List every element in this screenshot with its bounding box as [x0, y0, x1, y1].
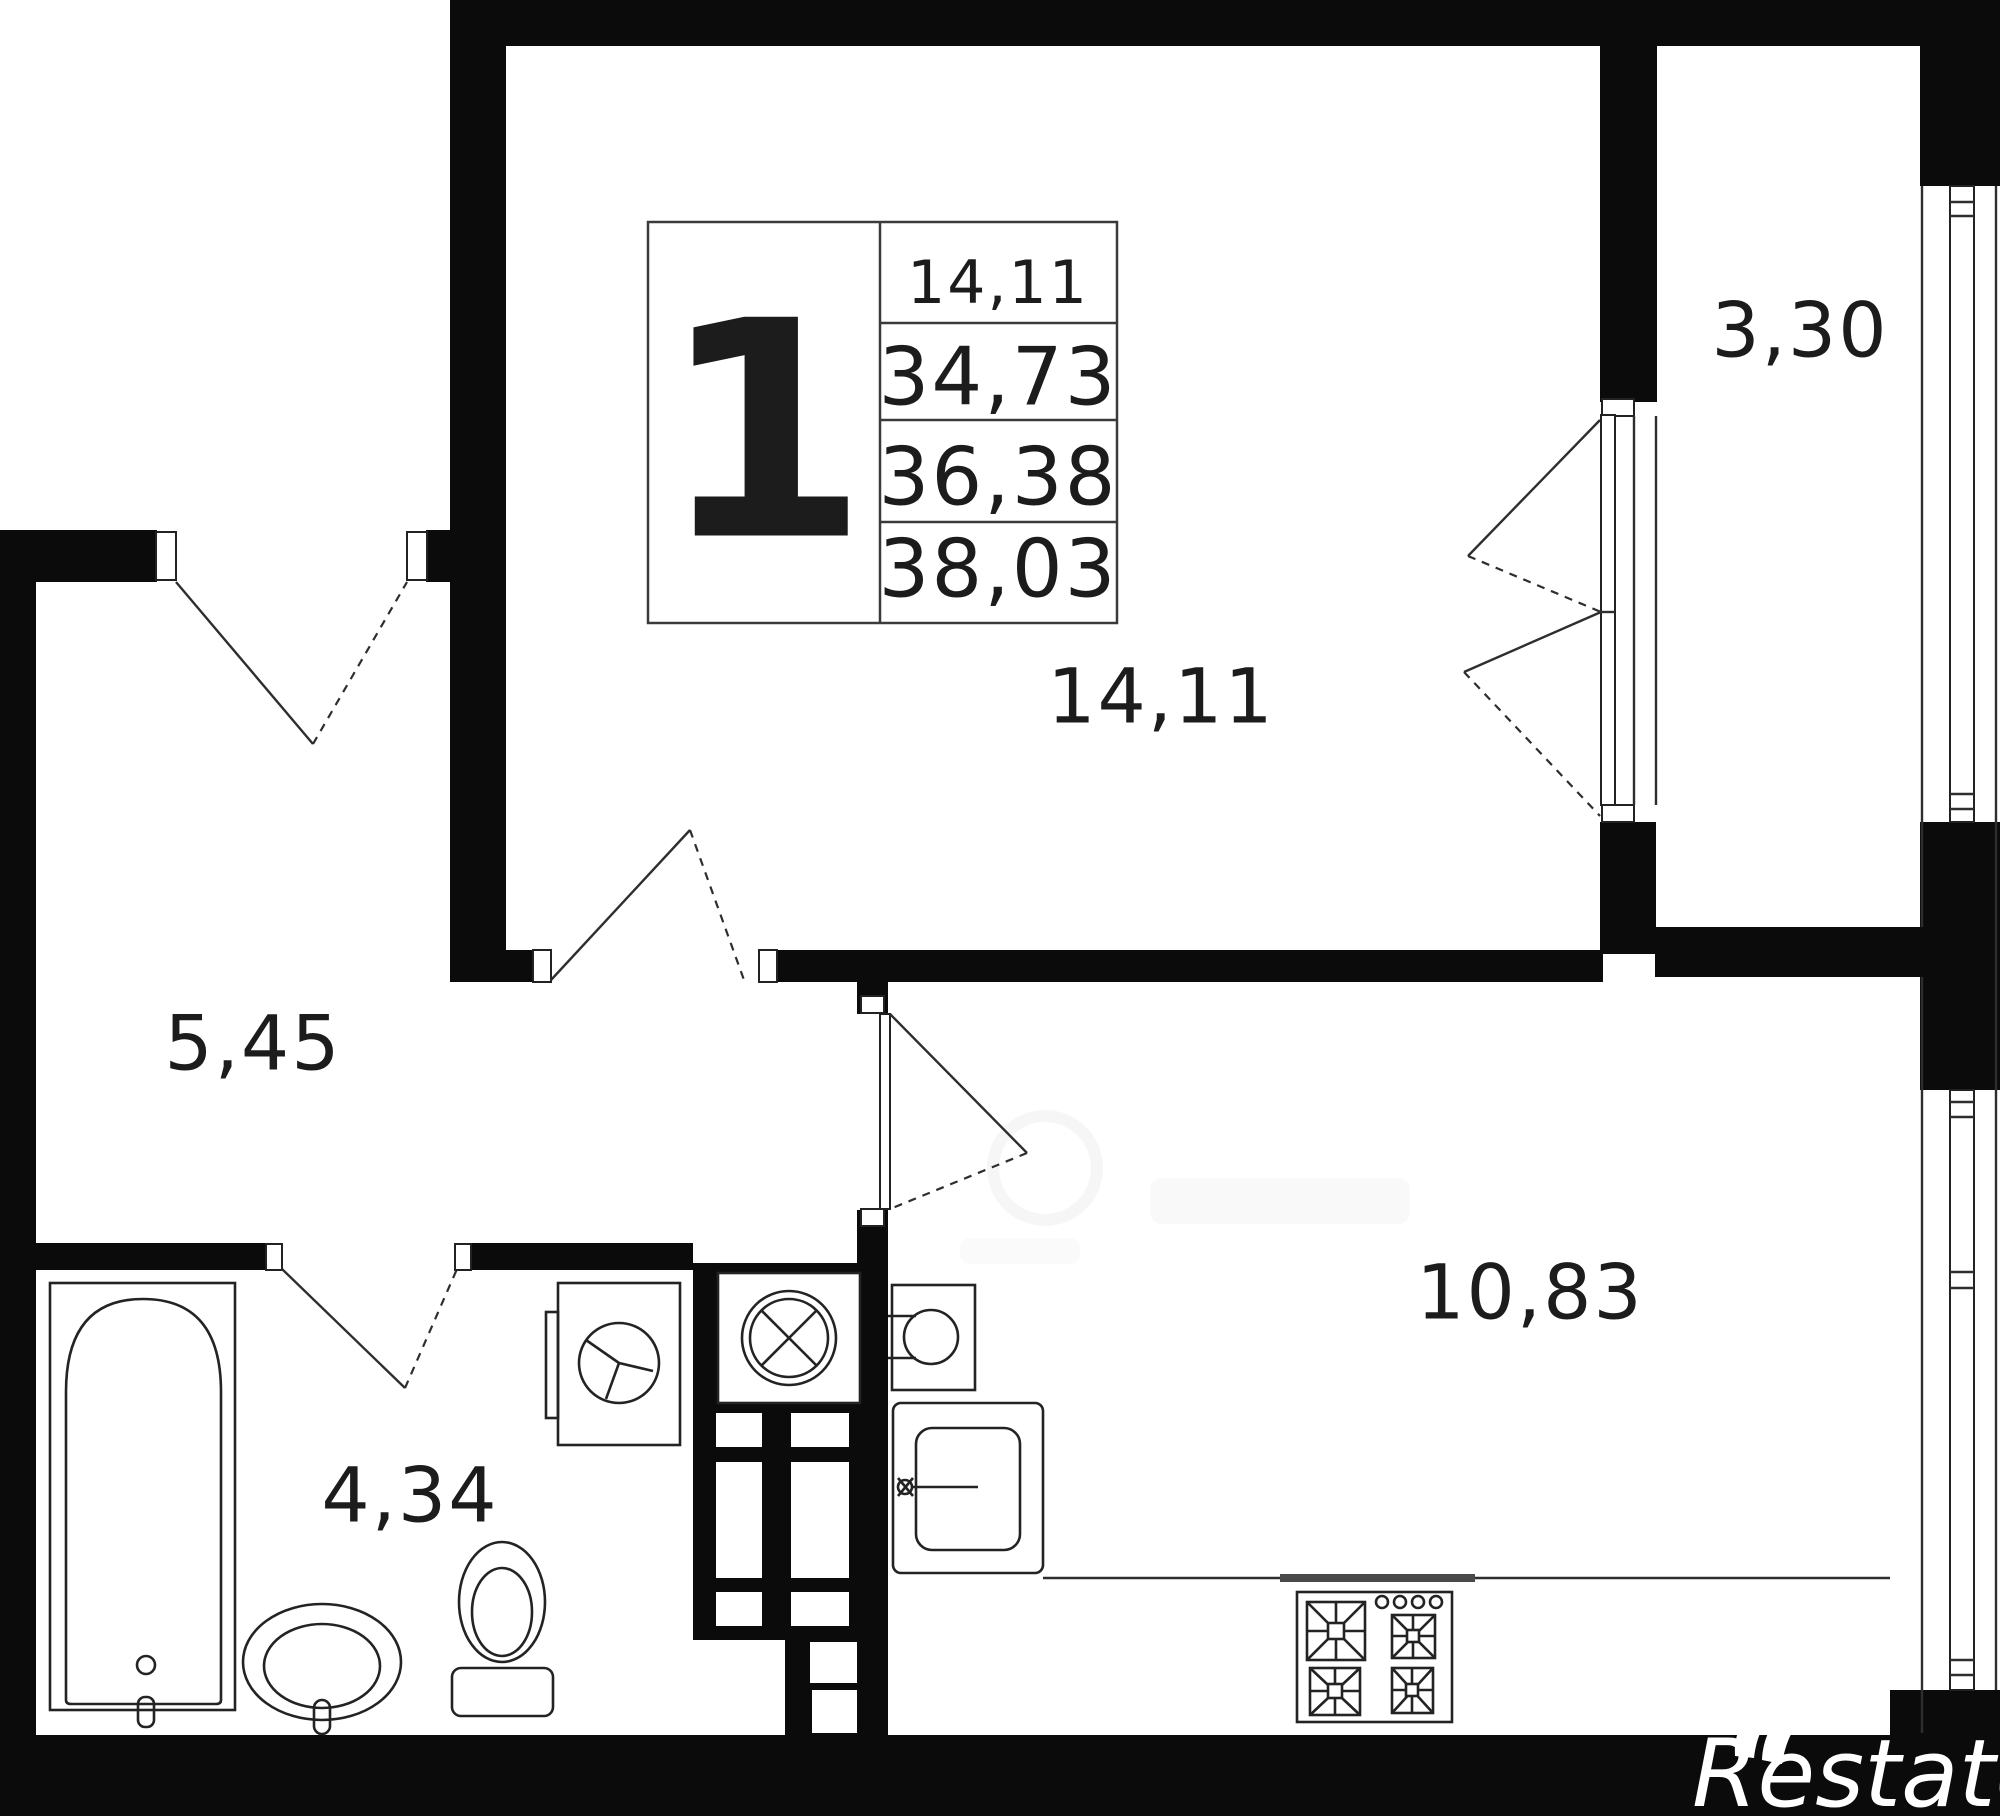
wall-left	[0, 530, 36, 1816]
unit-area-row-1: 14,11	[907, 248, 1089, 318]
unit-area-row-4: 38,03	[878, 523, 1117, 616]
stove-icon	[1297, 1592, 1452, 1722]
wall-top	[450, 0, 2000, 46]
burner	[1310, 1668, 1360, 1715]
toilet-icon	[452, 1542, 553, 1716]
room-label-bathroom: 4,34	[321, 1451, 498, 1540]
balcony-window	[1950, 186, 1974, 822]
entrance-door	[156, 532, 427, 744]
wall-balcony-divider-bottom	[1600, 822, 1656, 954]
ventilation-fan-icon	[718, 1273, 860, 1403]
washbasin-icon	[243, 1604, 401, 1734]
wall-right-mid-block	[1920, 822, 2000, 1090]
bathroom-door	[266, 1244, 471, 1388]
wall-balcony-divider-top	[1600, 40, 1657, 402]
wall-bathroom-top-right	[471, 1243, 693, 1270]
unit-info-box: 1 14,11 34,73 36,38 38,03	[648, 222, 1118, 623]
unit-area-row-3: 36,38	[878, 431, 1117, 524]
room-label-living: 14,11	[1047, 652, 1275, 741]
washing-machine-icon	[546, 1283, 680, 1445]
wall-top-right-block	[1920, 0, 2000, 186]
bathtub-icon	[50, 1283, 235, 1727]
boiler-icon	[888, 1285, 975, 1390]
wall-room-bottom-left	[450, 950, 534, 982]
faint-watermark-artifact	[960, 1116, 1410, 1264]
kitchen-window	[1950, 1090, 1974, 1690]
wall-balcony-bottom	[1655, 927, 1922, 977]
room-label-hallway: 5,45	[164, 999, 341, 1088]
kitchen-sink-icon	[893, 1403, 1043, 1573]
wall-bathroom-top-left	[36, 1243, 268, 1270]
wall-hallway-top-right	[426, 530, 454, 582]
floor-plan-page: 1 14,11 34,73 36,38 38,03 14,11 3,30 5,4…	[0, 0, 2000, 1816]
balcony-door	[1464, 399, 1656, 822]
wall-kitchen-top	[777, 950, 1603, 982]
room-label-kitchen: 10,83	[1416, 1248, 1644, 1337]
burner	[1392, 1668, 1433, 1713]
kitchen-counter-over-stove	[1280, 1574, 1475, 1582]
room-label-balcony: 3,30	[1711, 286, 1888, 375]
burner	[1392, 1615, 1435, 1658]
brand-watermark-text: Restate	[1692, 1720, 2000, 1816]
unit-number: 1	[660, 258, 871, 607]
unit-area-row-2: 34,73	[878, 331, 1117, 424]
floor-plan: 1 14,11 34,73 36,38 38,03 14,11 3,30 5,4…	[0, 0, 2000, 1816]
wall-room-left	[450, 0, 506, 982]
living-room-door	[533, 830, 777, 982]
burner	[1307, 1602, 1365, 1660]
